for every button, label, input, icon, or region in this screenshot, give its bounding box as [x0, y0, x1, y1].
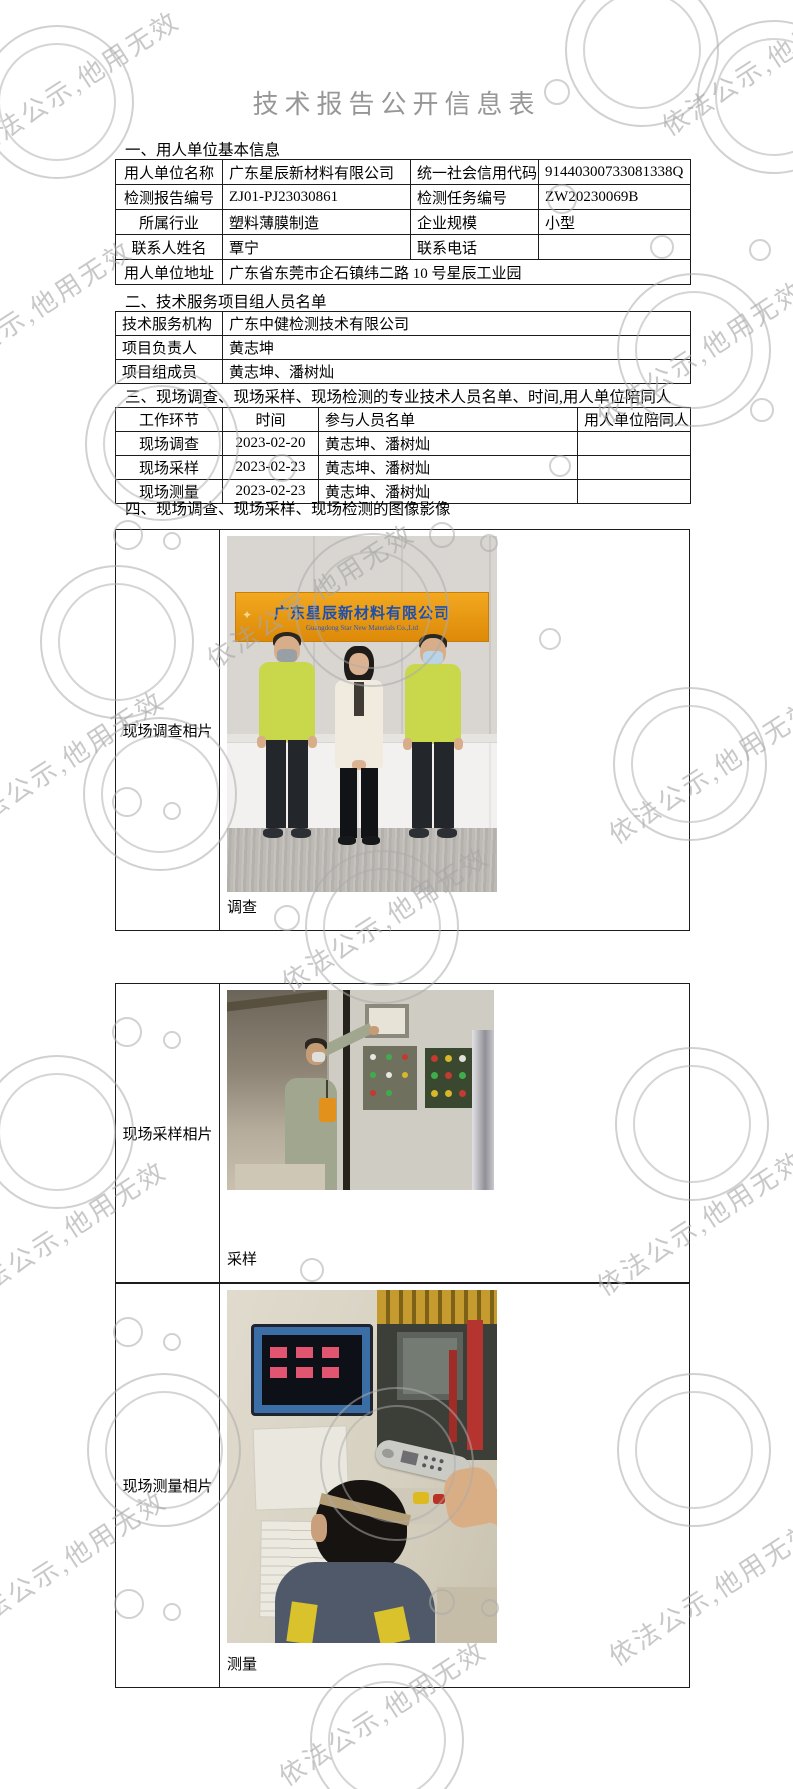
film-roll: [458, 1082, 474, 1190]
hand: [454, 738, 463, 750]
photo-row-label: 现场采样相片: [116, 984, 220, 1282]
shoe: [409, 828, 429, 838]
meter-key: [431, 1457, 436, 1462]
field-label: 检测任务编号: [411, 185, 539, 210]
field-label: 所属行业: [116, 210, 223, 235]
shoe: [437, 828, 457, 838]
indicator-light: [445, 1090, 452, 1097]
photo-caption: 采样: [227, 1248, 689, 1269]
table-row: 项目负责人 黄志坤: [116, 336, 691, 360]
banner-star-icon: ✦: [242, 608, 252, 623]
field-value: 小型: [539, 210, 691, 235]
indicator-light: [386, 1054, 392, 1060]
indicator-light: [431, 1072, 438, 1079]
photo-row-label: 现场调查相片: [116, 530, 220, 930]
indicator-light: [431, 1090, 438, 1097]
photo-row-sampling: 现场采样相片: [115, 983, 690, 1283]
photo-cell: 采样: [220, 984, 689, 1282]
work-staff: 黄志坤、潘树灿: [319, 456, 578, 480]
meter-display: [400, 1450, 418, 1465]
hand: [257, 736, 266, 748]
red-frame-bar: [467, 1320, 483, 1450]
section2-heading: 二、技术服务项目组人员名单: [125, 290, 327, 312]
meter-mic: [381, 1448, 395, 1459]
field-label: 检测报告编号: [116, 185, 223, 210]
field-value: 广东星辰新材料有限公司: [223, 160, 411, 185]
face-mask: [312, 1052, 325, 1062]
shoe: [263, 828, 283, 838]
work-staff: 黄志坤、潘树灿: [319, 432, 578, 456]
floor: [437, 1587, 497, 1643]
vest-accent: [286, 1601, 317, 1643]
watermark-dot: [750, 398, 774, 422]
work-date: 2023-02-23: [223, 456, 319, 480]
film-roll: [472, 1030, 494, 1190]
field-value: 广东中健检测技术有限公司: [223, 312, 691, 336]
pants: [361, 768, 378, 838]
pants: [412, 742, 432, 828]
polo-shirt: [259, 662, 315, 742]
field-label: 技术服务机构: [116, 312, 223, 336]
indicator-light: [370, 1090, 376, 1096]
column-header: 参与人员名单: [319, 408, 578, 432]
meter-key: [439, 1459, 444, 1464]
field-value: 塑料薄膜制造: [223, 210, 411, 235]
pants: [434, 742, 454, 828]
work-step: 现场调查: [116, 432, 223, 456]
column-header: 时间: [223, 408, 319, 432]
site-work-table: 工作环节 时间 参与人员名单 用人单位陪同人 现场调查 2023-02-20 黄…: [115, 407, 691, 504]
section3-heading: 三、现场调查、现场采样、现场检测的专业技术人员名单、时间,用人单位陪同人: [125, 385, 671, 407]
work-date: 2023-02-20: [223, 432, 319, 456]
field-value: ZJ01-PJ23030861: [223, 185, 411, 210]
table-row: 用人单位名称 广东星辰新材料有限公司 统一社会信用代码 914403007330…: [116, 160, 691, 185]
indicator-light: [402, 1072, 408, 1078]
watermark-ring: [0, 1055, 134, 1209]
field-value: 黄志坤: [223, 336, 691, 360]
person-left: [257, 632, 317, 846]
device-strap: [326, 1080, 328, 1100]
column-header: 用人单位陪同人: [578, 408, 691, 432]
table-row: 检测报告编号 ZJ01-PJ23030861 检测任务编号 ZW20230069…: [116, 185, 691, 210]
field-label: 联系电话: [411, 235, 539, 260]
meter-key: [424, 1455, 429, 1460]
indicator-light: [386, 1090, 392, 1096]
field-label: 企业规模: [411, 210, 539, 235]
table-row: 项目组成员 黄志坤、潘树灿: [116, 360, 691, 384]
watermark-dot: [749, 239, 771, 261]
polo-shirt: [405, 664, 461, 744]
field-value: ZW20230069B: [539, 185, 691, 210]
document-page: 技术报告公开信息表 一、用人单位基本信息 用人单位名称 广东星辰新材料有限公司 …: [0, 0, 793, 1789]
meter-key: [430, 1465, 435, 1470]
basic-info-table: 用人单位名称 广东星辰新材料有限公司 统一社会信用代码 914403007330…: [115, 159, 691, 285]
person-right: [403, 634, 463, 846]
banner-company-name: 广东星辰新材料有限公司: [274, 602, 450, 623]
field-value: 91440300733081338Q: [539, 160, 691, 185]
section4-heading: 四、现场调查、现场采样、现场检测的图像影像: [125, 497, 451, 519]
work-escort: [578, 432, 691, 456]
field-label: 项目组成员: [116, 360, 223, 384]
photo-row-label: 现场测量相片: [116, 1284, 220, 1687]
indicator-light: [431, 1055, 438, 1062]
pants: [340, 768, 357, 838]
photo-row-measurement: 现场测量相片: [115, 1283, 690, 1688]
table-row: 用人单位地址 广东省东莞市企石镇纬二路 10 号星辰工业园: [116, 260, 691, 285]
photo-investigation: ✦ 广东星辰新材料有限公司 Guangdong Star New Materia…: [227, 536, 497, 892]
table-row: 所属行业 塑料薄膜制造 企业规模 小型: [116, 210, 691, 235]
indicator-light: [445, 1072, 452, 1079]
table-row: 联系人姓名 覃宁 联系电话: [116, 235, 691, 260]
field-value: 广东省东莞市企石镇纬二路 10 号星辰工业园: [223, 260, 691, 285]
table-header-row: 工作环节 时间 参与人员名单 用人单位陪同人: [116, 408, 691, 432]
screen-text-block: [322, 1347, 339, 1358]
red-frame-bar: [449, 1350, 457, 1442]
shoe: [291, 828, 311, 838]
hair: [315, 1480, 407, 1572]
watermark-ring-inner: [0, 1073, 116, 1191]
screen-text-block: [270, 1367, 287, 1378]
indicator-light: [459, 1055, 466, 1062]
field-label: 联系人姓名: [116, 235, 223, 260]
face-mask: [423, 651, 443, 664]
photo-caption: 调查: [227, 896, 689, 917]
watermark-text: 依法公示,他用无效: [654, 0, 793, 143]
field-value: 黄志坤、潘树灿: [223, 360, 691, 384]
shoe: [362, 836, 380, 845]
meter-key: [437, 1467, 442, 1472]
hand: [403, 738, 412, 750]
window-slats: [377, 1290, 497, 1324]
work-step: 现场采样: [116, 456, 223, 480]
tape-roll: [413, 1492, 429, 1504]
hand: [308, 736, 317, 748]
indicator-light: [370, 1072, 376, 1078]
hand: [369, 1026, 379, 1035]
tape-roll: [433, 1494, 445, 1504]
field-label: 项目负责人: [116, 336, 223, 360]
machine-pole: [343, 990, 350, 1190]
pants: [266, 740, 286, 828]
indicator-light: [402, 1054, 408, 1060]
photo-caption: 测量: [227, 1653, 689, 1674]
pants: [288, 740, 308, 828]
face-side: [311, 1514, 327, 1542]
banner-company-name-en: Guangdong Star New Materials Co.,Ltd: [306, 624, 418, 632]
photo-cell: 测量: [220, 1284, 689, 1687]
indicator-light: [445, 1055, 452, 1062]
indicator-light: [370, 1054, 376, 1060]
indicator-light: [459, 1072, 466, 1079]
photo-row-investigation: 现场调查相片 ✦ 广东星辰新材料有限公司 Guangdong Star New …: [115, 529, 690, 931]
table-row: 技术服务机构 广东中健检测技术有限公司: [116, 312, 691, 336]
field-value: 覃宁: [223, 235, 411, 260]
shoe: [338, 836, 356, 845]
page-title: 技术报告公开信息表: [0, 84, 793, 121]
field-label: 用人单位地址: [116, 260, 223, 285]
hmi-screen-frame: [251, 1324, 373, 1416]
screen-text-block: [296, 1367, 313, 1378]
indicator-light: [386, 1072, 392, 1078]
section1-heading: 一、用人单位基本信息: [125, 138, 280, 160]
floor: [235, 1164, 325, 1190]
face-mask: [277, 649, 297, 662]
screen-text-block: [296, 1347, 313, 1358]
field-value: [539, 235, 691, 260]
column-header: 工作环节: [116, 408, 223, 432]
gas-detector: [319, 1098, 336, 1122]
screen-text-block: [322, 1367, 339, 1378]
work-escort: [578, 480, 691, 504]
meter-key: [422, 1463, 427, 1468]
watermark-ring-inner: [328, 1681, 446, 1789]
person-middle: [332, 646, 386, 846]
inner-shirt: [354, 682, 364, 716]
table-row: 现场采样 2023-02-23 黄志坤、潘树灿: [116, 456, 691, 480]
photo-cell: ✦ 广东星辰新材料有限公司 Guangdong Star New Materia…: [220, 530, 689, 930]
photo-measurement: [227, 1290, 497, 1643]
project-team-table: 技术服务机构 广东中健检测技术有限公司 项目负责人 黄志坤 项目组成员 黄志坤、…: [115, 311, 691, 384]
photo-sampling: [227, 990, 494, 1190]
field-label: 统一社会信用代码: [411, 160, 539, 185]
work-escort: [578, 456, 691, 480]
field-label: 用人单位名称: [116, 160, 223, 185]
screen-text-block: [270, 1347, 287, 1358]
control-panel-a: [363, 1046, 417, 1110]
table-row: 现场调查 2023-02-20 黄志坤、潘树灿: [116, 432, 691, 456]
head: [349, 653, 369, 675]
